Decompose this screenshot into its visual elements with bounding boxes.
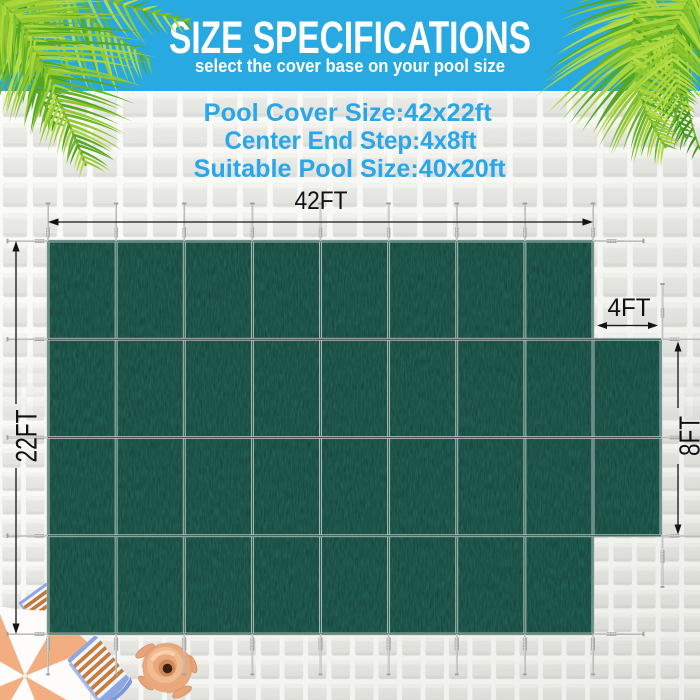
svg-text:22FT: 22FT (11, 410, 44, 463)
svg-text:Suitable Pool Size:40x20ft: Suitable Pool Size:40x20ft (194, 155, 507, 183)
svg-text:select the cover base on your: select the cover base on your pool size (195, 56, 505, 76)
svg-text:Center End Step:4x8ft: Center End Step:4x8ft (225, 127, 478, 155)
svg-text:42FT: 42FT (295, 187, 348, 215)
svg-text:8FT: 8FT (675, 416, 700, 456)
svg-text:Pool Cover Size:42x22ft: Pool Cover Size:42x22ft (204, 99, 493, 127)
svg-text:4FT: 4FT (608, 294, 651, 322)
